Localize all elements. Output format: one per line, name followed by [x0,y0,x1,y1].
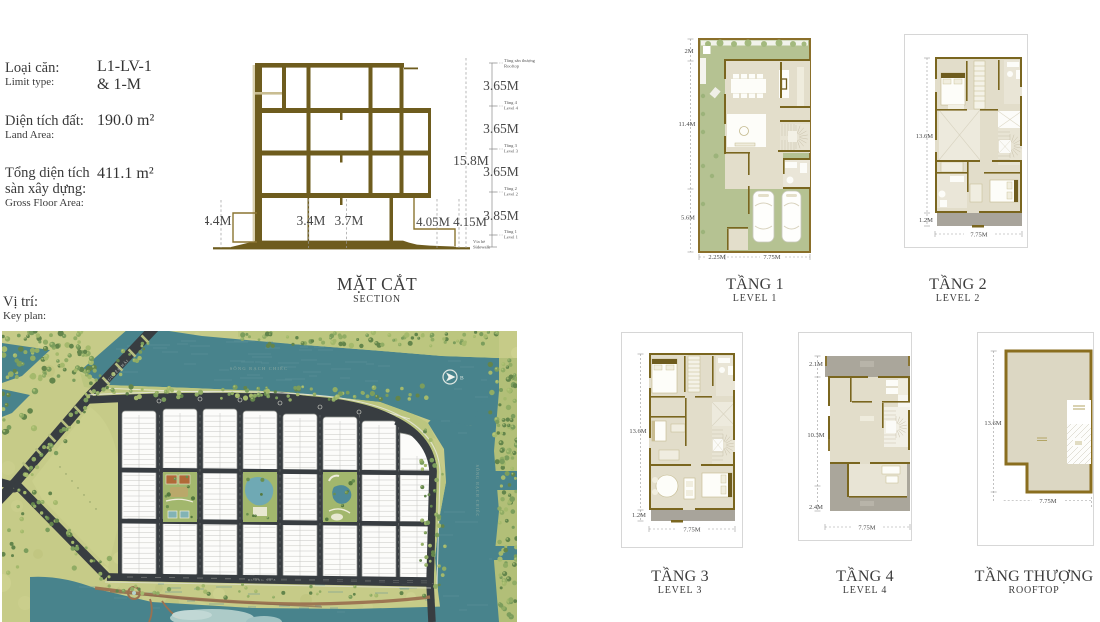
svg-text:3.65M: 3.65M [483,78,519,93]
svg-text:4.05M: 4.05M [416,215,450,229]
svg-text:Level 2: Level 2 [504,192,519,197]
svg-text:Tầng 4: Tầng 4 [504,100,518,105]
svg-text:11.4M: 11.4M [679,121,696,128]
svg-text:7.75M: 7.75M [970,232,987,239]
svg-text:7.75M: 7.75M [763,254,780,261]
svg-text:13.6M: 13.6M [629,428,646,435]
svg-text:B: B [460,376,464,382]
svg-text:SÔNG RẠCH CHIẾC: SÔNG RẠCH CHIẾC [475,465,480,518]
svg-text:3.65M: 3.65M [483,121,519,136]
svg-text:SÔNG RẠCH CHIẾC: SÔNG RẠCH CHIẾC [230,366,289,371]
svg-text:2.25M: 2.25M [708,254,725,261]
svg-text:15.8M: 15.8M [453,153,489,168]
svg-text:Sidewalk: Sidewalk [473,245,491,250]
svg-text:3.7M: 3.7M [335,213,364,228]
svg-text:1.2M: 1.2M [632,512,646,519]
svg-text:7.75M: 7.75M [858,525,875,532]
svg-text:Vỉa hè: Vỉa hè [473,239,485,244]
svg-text:Level 4: Level 4 [504,106,519,111]
svg-text:3.85M: 3.85M [483,208,519,223]
svg-text:Level 3: Level 3 [504,149,519,154]
svg-text:13.6M: 13.6M [916,133,933,140]
svg-text:Tầng 1: Tầng 1 [504,229,518,234]
svg-text:4.15M: 4.15M [453,215,487,229]
svg-text:2M: 2M [684,48,693,55]
svg-text:7.75M: 7.75M [683,527,700,534]
svg-text:10.3M: 10.3M [807,432,824,439]
svg-text:Tầng sân thượng: Tầng sân thượng [504,58,536,63]
svg-text:7.75M: 7.75M [1039,498,1056,505]
svg-text:Tầng 3: Tầng 3 [504,143,518,148]
svg-text:2.1M: 2.1M [809,361,823,368]
svg-text:Level 1: Level 1 [504,235,519,240]
svg-text:13.6M: 13.6M [984,420,1001,427]
svg-text:5.6M: 5.6M [681,215,695,222]
svg-text:Tầng 2: Tầng 2 [504,186,518,191]
svg-text:Rooftop: Rooftop [504,64,520,69]
svg-text:1.2M: 1.2M [919,217,933,224]
svg-text:ĐƯỜNG SỐ 8: ĐƯỜNG SỐ 8 [248,577,276,582]
svg-text:3.4M: 3.4M [297,213,326,228]
svg-text:4.4M: 4.4M [205,213,231,228]
svg-text:2.4M: 2.4M [809,504,823,511]
